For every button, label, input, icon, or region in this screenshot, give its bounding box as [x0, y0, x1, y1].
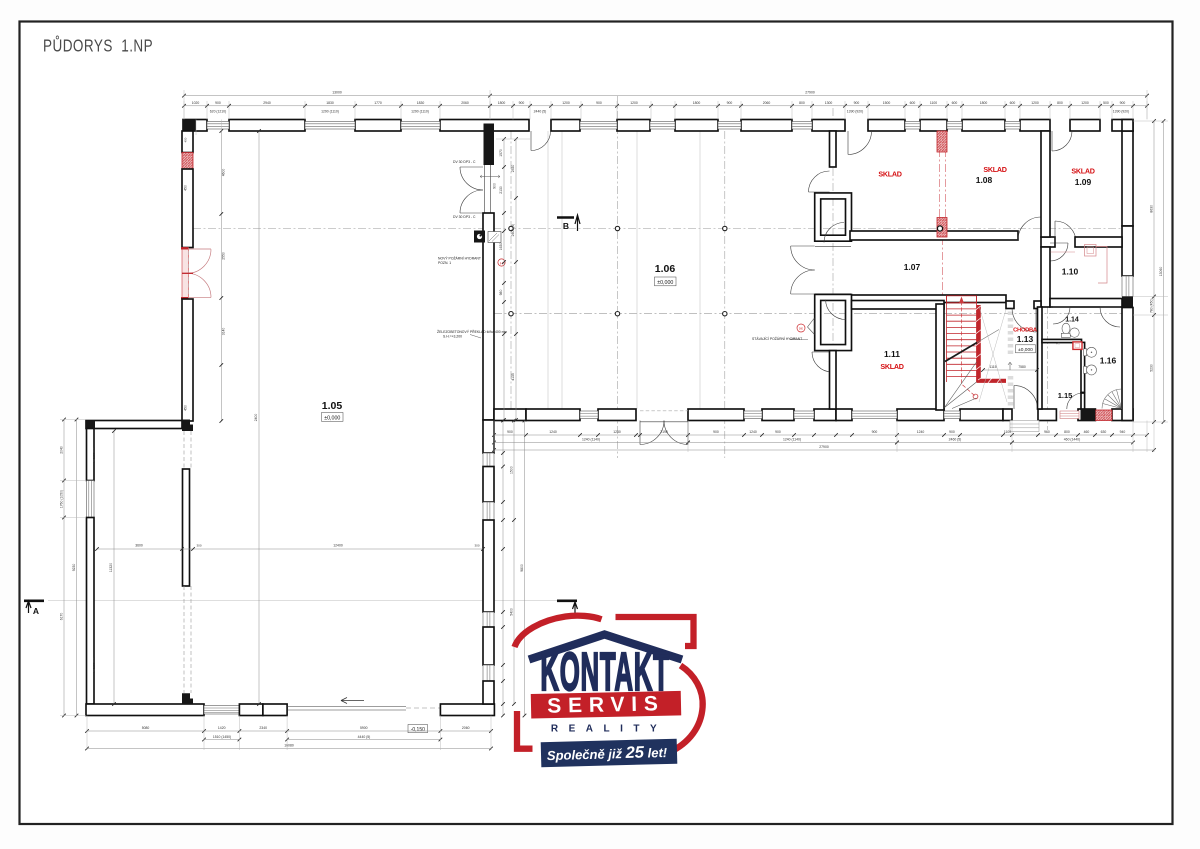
svg-text:1230: 1230 [613, 430, 621, 434]
svg-text:2340: 2340 [259, 726, 267, 730]
svg-text:2440 (5): 2440 (5) [534, 110, 547, 114]
svg-text:5230: 5230 [1150, 364, 1154, 372]
svg-text:9230: 9230 [72, 564, 76, 572]
svg-text:-0,150: -0,150 [411, 727, 425, 733]
svg-text:1570: 1570 [499, 149, 503, 157]
svg-text:2460 (5): 2460 (5) [949, 437, 962, 441]
svg-text:900: 900 [1120, 101, 1126, 105]
svg-text:1.15: 1.15 [1058, 391, 1073, 400]
svg-text:900: 900 [493, 183, 497, 189]
svg-text:780 (450): 780 (450) [1150, 299, 1154, 314]
svg-text:2400: 2400 [254, 414, 258, 422]
svg-text:600: 600 [1010, 101, 1016, 105]
svg-text:300: 300 [474, 544, 479, 548]
svg-text:13060: 13060 [1159, 267, 1163, 277]
svg-text:SKLAD: SKLAD [878, 170, 901, 179]
svg-text:1300: 1300 [825, 101, 833, 105]
svg-text:1200: 1200 [562, 101, 570, 105]
svg-text:6170: 6170 [60, 613, 64, 621]
svg-text:2530: 2530 [511, 165, 515, 173]
svg-text:2550: 2550 [222, 252, 226, 260]
svg-text:5900: 5900 [360, 726, 368, 730]
svg-text:2040: 2040 [60, 446, 64, 454]
svg-text:1.11: 1.11 [884, 349, 900, 359]
svg-text:27900: 27900 [819, 445, 829, 449]
svg-text:900: 900 [949, 430, 955, 434]
svg-text:1290 (1110): 1290 (1110) [321, 110, 339, 114]
svg-text:900: 900 [507, 430, 513, 434]
svg-text:1200: 1200 [1031, 101, 1039, 105]
svg-text:1240: 1240 [749, 430, 757, 434]
svg-text:1420: 1420 [218, 726, 226, 730]
svg-text:1.08: 1.08 [976, 175, 993, 185]
svg-text:SKLAD: SKLAD [983, 165, 1006, 174]
svg-text:1500: 1500 [510, 466, 514, 474]
svg-text:2130: 2130 [499, 186, 503, 194]
svg-text:NOVÝ POŽÁRNÍ HYDRANT: NOVÝ POŽÁRNÍ HYDRANT [438, 256, 481, 261]
svg-text:4135: 4135 [511, 373, 515, 381]
svg-text:7580: 7580 [1018, 365, 1026, 369]
svg-text:2190: 2190 [660, 430, 668, 434]
svg-text:±0,000: ±0,000 [657, 280, 673, 286]
svg-text:960: 960 [1044, 430, 1050, 434]
svg-text:H: H [799, 326, 802, 331]
svg-text:600: 600 [910, 101, 916, 105]
svg-text:CHODBA: CHODBA [1013, 328, 1038, 334]
svg-text:1.07: 1.07 [904, 262, 921, 272]
svg-text:4600: 4600 [222, 169, 226, 177]
svg-text:460: 460 [1084, 430, 1090, 434]
svg-text:1830: 1830 [417, 101, 425, 105]
svg-text:DV 30 DP3 - C: DV 30 DP3 - C [453, 215, 476, 219]
svg-text:600: 600 [952, 101, 958, 105]
svg-text:1.16: 1.16 [1100, 356, 1117, 366]
svg-text:±0,000: ±0,000 [1018, 347, 1033, 353]
svg-text:1200: 1200 [1081, 101, 1089, 105]
svg-text:5400: 5400 [510, 608, 514, 616]
svg-text:1240: 1240 [917, 430, 925, 434]
svg-text:11320: 11320 [109, 563, 113, 572]
svg-text:9800: 9800 [520, 564, 524, 572]
svg-text:1390 (920): 1390 (920) [847, 110, 863, 114]
svg-text:PŮDORYS 1.NP: PŮDORYS 1.NP [43, 35, 153, 56]
svg-text:450: 450 [184, 185, 188, 191]
svg-text:300: 300 [196, 544, 201, 548]
svg-text:8630: 8630 [1150, 205, 1154, 213]
svg-text:1.14: 1.14 [1065, 317, 1079, 324]
svg-text:900: 900 [215, 101, 221, 105]
svg-text:1760 (1050): 1760 (1050) [60, 490, 64, 508]
svg-text:±0,000: ±0,000 [324, 415, 340, 421]
svg-text:1800: 1800 [693, 101, 701, 105]
svg-text:SERVIS: SERVIS [547, 692, 665, 717]
svg-text:1800: 1800 [980, 101, 988, 105]
svg-text:1100: 1100 [1004, 430, 1011, 434]
svg-text:980: 980 [499, 290, 503, 296]
svg-text:27900: 27900 [805, 91, 815, 95]
svg-text:900: 900 [596, 101, 602, 105]
svg-text:1240 (1140): 1240 (1140) [582, 437, 600, 441]
svg-text:1240 (1140): 1240 (1140) [783, 437, 801, 441]
svg-text:A: A [33, 606, 39, 616]
svg-text:1830: 1830 [326, 101, 334, 105]
svg-text:1500: 1500 [883, 101, 891, 105]
svg-text:1.13: 1.13 [1017, 334, 1034, 344]
svg-text:1240: 1240 [549, 430, 557, 434]
svg-text:500: 500 [1103, 101, 1109, 105]
svg-text:+□: +□ [1056, 342, 1060, 346]
svg-text:1510 (1450): 1510 (1450) [213, 735, 231, 739]
svg-text:1770: 1770 [374, 101, 382, 105]
svg-text:3600: 3600 [135, 544, 143, 548]
svg-text:450: 450 [184, 405, 188, 411]
svg-text:SKLAD: SKLAD [880, 362, 903, 371]
svg-text:1115: 1115 [989, 365, 996, 369]
svg-text:630: 630 [1101, 430, 1107, 434]
svg-text:1100: 1100 [930, 101, 937, 105]
svg-text:1.10: 1.10 [1062, 267, 1079, 277]
svg-text:1390 (920): 1390 (920) [1113, 110, 1129, 114]
svg-text:450: 450 [184, 137, 188, 142]
svg-text:1.09: 1.09 [1075, 177, 1092, 187]
svg-text:900: 900 [854, 101, 860, 105]
svg-text:13000: 13000 [332, 91, 342, 95]
svg-text:620 (1210): 620 (1210) [210, 110, 226, 114]
svg-text:1290 (1110): 1290 (1110) [411, 110, 429, 114]
svg-text:900: 900 [775, 430, 781, 434]
svg-text:ŽELEZOBETONOVÝ PŘEKLAD šířka 4: ŽELEZOBETONOVÝ PŘEKLAD šířka 400 mm [437, 329, 507, 334]
svg-text:12400: 12400 [333, 544, 343, 548]
svg-text:4440 (5): 4440 (5) [358, 735, 371, 739]
svg-text:1800: 1800 [498, 101, 506, 105]
svg-text:POZN. 1: POZN. 1 [438, 261, 451, 265]
svg-text:SKLAD: SKLAD [1071, 167, 1094, 176]
svg-text:1020: 1020 [192, 101, 200, 105]
svg-text:S.H.=+3,200: S.H.=+3,200 [443, 335, 462, 339]
svg-text:2600 (5): 2600 (5) [511, 224, 515, 237]
svg-text:16080: 16080 [284, 743, 294, 747]
svg-text:2060: 2060 [461, 101, 469, 105]
svg-text:5080: 5080 [142, 726, 150, 730]
svg-text:940: 940 [1120, 430, 1126, 434]
svg-text:1630: 1630 [499, 243, 503, 251]
svg-text:900: 900 [519, 101, 525, 105]
svg-text:3140: 3140 [222, 328, 226, 336]
svg-text:900: 900 [872, 430, 878, 434]
svg-text:900: 900 [713, 430, 719, 434]
svg-text:DV 30 DP3 - C: DV 30 DP3 - C [453, 160, 476, 164]
svg-text:1.05: 1.05 [322, 400, 343, 412]
svg-text:1.06: 1.06 [655, 263, 676, 275]
svg-text:h=3520mm: h=3520mm [92, 657, 96, 673]
svg-text:2940: 2940 [263, 101, 271, 105]
svg-text:800: 800 [799, 101, 805, 105]
svg-text:800: 800 [1064, 430, 1070, 434]
svg-text:REALITY: REALITY [551, 724, 667, 735]
svg-text:2060: 2060 [763, 101, 771, 105]
svg-text:1200: 1200 [630, 101, 638, 105]
svg-text:h=3520mm: h=3520mm [92, 447, 96, 463]
svg-text:800: 800 [1057, 101, 1063, 105]
svg-text:900: 900 [727, 101, 733, 105]
svg-text:B: B [563, 221, 569, 231]
svg-text:460 (1440): 460 (1440) [1064, 437, 1080, 441]
svg-text:2060: 2060 [462, 726, 470, 730]
